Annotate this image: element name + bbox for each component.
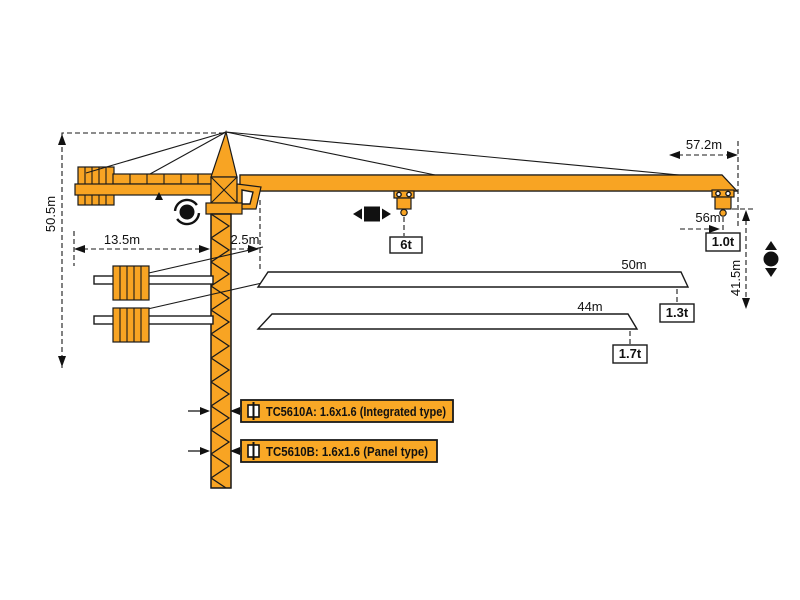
dim-hook-height: 41.5m [724, 209, 756, 309]
arrow-right-icon [200, 447, 210, 455]
arrow-down-icon [765, 268, 777, 277]
trolley-square [364, 207, 380, 222]
counterweight-block [113, 266, 149, 300]
capacity-44m-label: 1.7t [619, 346, 642, 361]
dim-total-height-label: 50.5m [43, 196, 58, 232]
arrow-left-icon [353, 209, 362, 220]
leader-line [130, 283, 262, 313]
arrow-left-icon [669, 151, 680, 159]
tie-rod-jib-far [226, 132, 700, 177]
arrow-up-icon [58, 134, 66, 145]
slewing-platform [206, 203, 242, 214]
arrow-down-icon [742, 298, 750, 309]
mast-section-icon [248, 442, 259, 460]
ballast-beam [94, 276, 213, 284]
trolley-wheel-icon [397, 192, 401, 196]
jib-50m-label: 50m [621, 257, 646, 272]
tower [206, 132, 261, 488]
arrow-left-icon [74, 245, 85, 253]
jib-option-50m: 50m 1.3t [258, 257, 694, 322]
dim-hook-radius: 56m [680, 210, 723, 233]
counter-jib-girder [75, 184, 213, 195]
ballast-beam [94, 316, 213, 324]
trolley-travel-icon [353, 207, 391, 222]
arrow-up-icon [742, 210, 750, 221]
trolley-wheel-icon [716, 191, 720, 195]
dim-max-radius-label: 57.2m [686, 137, 722, 152]
trolley-wheel-icon [726, 191, 730, 195]
jib-length-bar [258, 314, 637, 329]
arrow-right-icon [727, 151, 738, 159]
hook-block [397, 198, 411, 209]
hoisting-icon [764, 241, 779, 277]
arrow-right-icon [382, 209, 391, 220]
dim-hook-height-label: 41.5m [728, 260, 743, 296]
tie-rod-jib-near [226, 132, 440, 176]
slewing-icon [173, 197, 201, 226]
crane-diagram: 50.5m [0, 0, 800, 600]
model-b-label: TC5610B: 1.6x1.6 (Panel type) [266, 444, 428, 459]
mast-section-icon [248, 402, 259, 420]
counterweight-option-1 [94, 247, 263, 300]
dim-counter-jib-label: 13.5m [104, 232, 140, 247]
jib-length-bar [258, 272, 688, 287]
arrow-up-icon [765, 241, 777, 250]
counter-jib [75, 167, 213, 205]
capacity-tip-label: 1.0t [712, 234, 735, 249]
dim-counter-jib: 13.5m [74, 231, 210, 266]
trolley-mid: 6t [390, 191, 422, 253]
tie-rod-counterjib-far [86, 132, 226, 173]
capacity-tip: 1.0t [706, 233, 740, 251]
jib-outline [240, 175, 737, 191]
hook-block [715, 197, 731, 209]
jib-option-44m: 44m 1.7t [258, 299, 647, 363]
hook-icon [401, 209, 407, 215]
dim-hook-radius-label: 56m [695, 210, 720, 225]
main-jib [240, 175, 737, 191]
model-a-label: TC5610A: 1.6x1.6 (Integrated type) [266, 404, 446, 419]
tie-rods [86, 132, 700, 177]
arrow-right-icon [199, 245, 210, 253]
slewing-dot [178, 203, 196, 221]
capacity-mid-label: 6t [400, 237, 412, 252]
hook-icon [720, 210, 726, 216]
capacity-50m-label: 1.3t [666, 305, 689, 320]
counterweight-block [113, 308, 149, 342]
jib-44m-label: 44m [577, 299, 602, 314]
hoisting-dot [764, 252, 779, 267]
arrow-right-icon [200, 407, 210, 415]
arrow-right-icon [709, 225, 720, 233]
arrow-down-icon [58, 356, 66, 367]
trolley-wheel-icon [407, 192, 411, 196]
dim-jib-root-label: 2.5m [231, 232, 260, 247]
